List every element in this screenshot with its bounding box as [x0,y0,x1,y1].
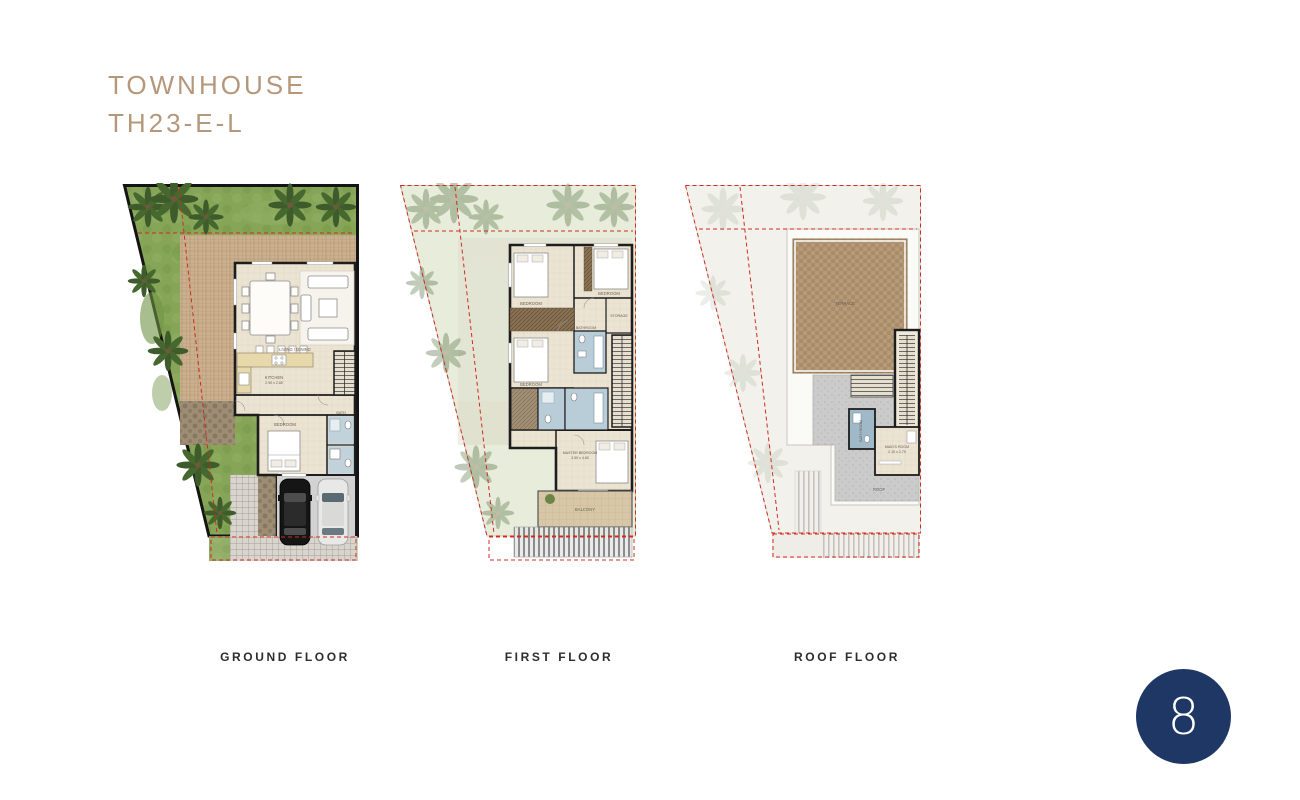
window [234,333,237,349]
first-floor-plan: BEDROOM BEDROOM BEDROOM STORAGE BATHROOM… [398,183,640,570]
bathroom-2 [511,388,608,430]
roof-floor-plan: TERRACE BATH ROOM MAID'S ROOM 2.10 x 2.7… [683,183,925,567]
svg-text:BALCONY: BALCONY [575,507,595,512]
window [879,461,901,464]
svg-text:BATHROOM: BATHROOM [576,326,597,330]
svg-text:LIVING / DINING: LIVING / DINING [279,347,311,352]
svg-text:KITCHEN: KITCHEN [265,375,283,380]
sofa-set [300,271,354,345]
svg-text:MASTER BEDROOM: MASTER BEDROOM [563,451,598,455]
svg-text:BATH ROOM: BATH ROOM [859,420,863,442]
stone-path [180,401,235,445]
terrace-steps [851,375,893,397]
wardrobe [584,247,592,291]
planter [545,494,555,504]
bathroom-1 [574,331,606,373]
svg-text:STORAGE: STORAGE [610,314,628,318]
window [594,244,618,247]
ground-floor-plan: LIVING / DINING KITCHEN 2.90 x 2.80 BEDR… [122,183,360,570]
stove [272,355,286,365]
svg-text:3.50 x 4.80: 3.50 x 4.80 [571,456,589,460]
page-title: TOWNHOUSE TH23-E-L [108,66,306,142]
window [509,263,512,287]
shower [542,392,554,403]
window [252,262,272,265]
svg-text:MAID'S ROOM: MAID'S ROOM [885,445,909,449]
staircase [895,330,919,430]
wardrobe-closet [511,388,538,430]
svg-text:BATH: BATH [336,411,346,415]
svg-text:BEDROOM: BEDROOM [274,422,296,427]
page-number: 8 [1168,688,1200,746]
slat-deck-left [795,471,821,533]
page-number-badge: 8 [1136,669,1231,764]
window [307,262,333,265]
window [234,279,237,305]
car-white [316,479,350,545]
first-floor-label: FIRST FLOOR [439,650,679,664]
patio [180,235,356,263]
svg-text:TERRACE: TERRACE [835,301,855,306]
bathtub [594,336,603,368]
car-black [278,479,312,545]
svg-text:BEDROOM: BEDROOM [520,382,542,387]
window [282,474,306,477]
bottom-strip [772,533,920,558]
page-title-line1: TOWNHOUSE [108,66,306,104]
bedroom [268,431,300,471]
svg-text:BEDROOM: BEDROOM [598,291,620,296]
terrace [793,239,907,373]
pergola-deck [514,527,632,557]
page-title-line2: TH23-E-L [108,104,306,142]
paved-walkway [230,475,258,536]
svg-text:BEDROOM: BEDROOM [520,301,542,306]
svg-text:2.10 x 2.79: 2.10 x 2.79 [888,450,906,454]
bathtub [594,393,603,423]
sink [239,373,249,385]
window [509,343,512,363]
svg-text:ROOF: ROOF [873,487,886,492]
dining-table [242,273,298,343]
window [524,244,546,247]
roof-floor-label: ROOF FLOOR [727,650,967,664]
wardrobe [510,308,574,331]
ground-floor-label: GROUND FLOOR [165,650,405,664]
svg-text:2.90 x 2.80: 2.90 x 2.80 [265,381,283,385]
